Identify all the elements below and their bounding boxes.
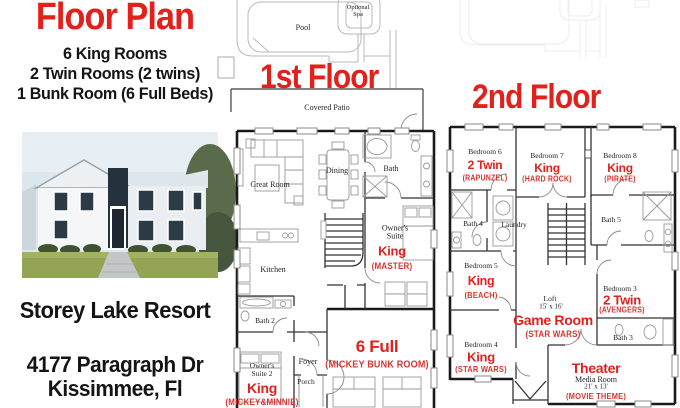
theme-label-game-room: (STAR WARS) — [526, 329, 581, 339]
page-title: Floor Plan — [12, 0, 219, 39]
house-photo — [22, 132, 218, 278]
ghost-pool-outline — [460, 0, 649, 58]
room-label-bath5: Bath 5 — [601, 216, 621, 224]
summary-line-1: 6 King Rooms — [6, 44, 225, 64]
bed-label-bedroom8: King — [607, 161, 632, 175]
theme-label-bedroom3: (AVENGERS) — [599, 307, 644, 315]
floor-plan-flyer: Floor Plan 6 King Rooms 2 Twin Rooms (2 … — [0, 0, 680, 408]
bed-label-owners-suite2: King — [247, 380, 277, 396]
theme-label-bedroom6: (RAPUNZEL) — [463, 175, 508, 183]
size-label-loft: 15' x 16' — [539, 303, 563, 310]
info-panel: Floor Plan 6 King Rooms 2 Twin Rooms (2 … — [0, 0, 230, 408]
room-label-bedroom5: Bedroom 5 — [464, 262, 498, 270]
bed-label-owners-suite: King — [378, 244, 406, 259]
room-label-bath2: Bath 2 — [255, 317, 275, 325]
address-line-1: 4177 Paragraph Dr — [6, 352, 225, 378]
theme-label-bedroom7: (HARD ROCK) — [522, 176, 572, 184]
bed-label-bedroom7: King — [534, 161, 559, 175]
theme-label-bedroom8: (PIRATE) — [604, 176, 635, 184]
theme-label-theater: (MOVIE THEME) — [566, 391, 626, 401]
room-label-dining: Dining — [326, 167, 348, 175]
address-line-2: Kissimmee, Fl — [6, 376, 225, 402]
bed-label-bedroom4: King — [467, 350, 495, 365]
room-label-bedroom6: Bedroom 6 — [468, 148, 502, 156]
room-label-bath3: Bath 3 — [613, 334, 633, 342]
resort-name: Storey Lake Resort — [6, 297, 225, 324]
theme-label-bedroom4: (STAR WARS) — [455, 364, 507, 374]
room-label-pool: Pool — [296, 24, 311, 32]
theme-label-bunk-room: (MICKEY BUNK ROOM) — [325, 358, 428, 369]
room-label-covered-patio: Covered Patio — [304, 104, 350, 112]
room-label-owners-suite2: Owner's Suite 2 — [242, 362, 282, 378]
room-label-bath4: Bath 4 — [463, 220, 483, 228]
theme-label-owners-suite: (MASTER) — [372, 261, 413, 271]
room-label-bedroom8: Bedroom 8 — [603, 152, 637, 160]
bed-label-bunk-room: 6 Full — [356, 337, 399, 357]
bed-label-bedroom3: 2 Twin — [603, 293, 641, 308]
room-label-kitchen: Kitchen — [260, 266, 285, 274]
room-label-bedroom7: Bedroom 7 — [530, 152, 564, 160]
bed-label-theater: Theater — [572, 360, 620, 376]
summary-line-3: 1 Bunk Room (6 Full Beds) — [6, 84, 225, 104]
room-label-owners-suite: Owner's Suite — [375, 225, 415, 242]
room-label-bath: Bath — [383, 165, 398, 173]
first-floor-title: 1st Floor — [260, 58, 378, 97]
room-label-bedroom4: Bedroom 4 — [464, 341, 498, 349]
summary-line-2: 2 Twin Rooms (2 twins) — [6, 64, 225, 84]
bed-label-game-room: Game Room — [513, 312, 593, 328]
room-label-great-room: Great Room — [250, 181, 289, 189]
theme-label-owners-suite2: (MICKEY&MINNIE) — [225, 397, 298, 407]
size-label-theater: 21' x 13' — [584, 383, 608, 390]
second-floor-title: 2nd Floor — [472, 78, 600, 117]
bed-label-bedroom5: King — [468, 274, 495, 288]
room-label-foyer: Foyer — [299, 358, 318, 366]
room-label-spa: Optional Spa — [341, 5, 375, 19]
room-label-porch: Porch — [297, 378, 315, 386]
room-label-laundry: Laundry — [501, 221, 526, 229]
bed-label-bedroom6: 2 Twin — [468, 158, 503, 172]
theme-label-bedroom5: (BEACH) — [464, 290, 497, 300]
